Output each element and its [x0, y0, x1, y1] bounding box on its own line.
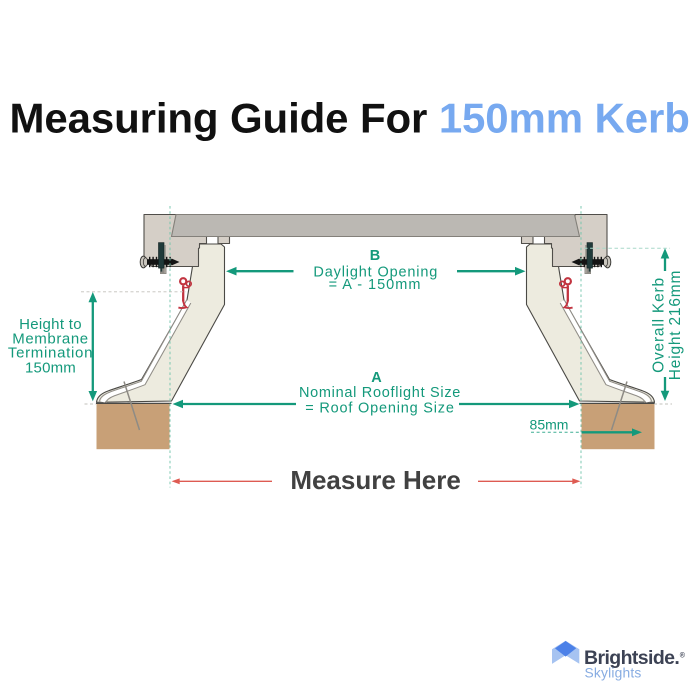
svg-text:= A - 150mm: = A - 150mm: [329, 277, 422, 293]
svg-text:Measure Here: Measure Here: [290, 465, 461, 495]
svg-text:Height 216mm: Height 216mm: [667, 270, 684, 380]
svg-text:85mm: 85mm: [530, 416, 569, 432]
svg-text:A: A: [371, 370, 382, 386]
svg-text:Measuring Guide For 150mm Kerb: Measuring Guide For 150mm Kerb: [10, 95, 690, 142]
svg-text:150mm: 150mm: [25, 359, 76, 376]
svg-text:B: B: [370, 248, 380, 264]
svg-text:Nominal Rooflight Size: Nominal Rooflight Size: [299, 385, 461, 401]
svg-text:= Roof Opening Size: = Roof Opening Size: [305, 401, 454, 417]
svg-text:Skylights: Skylights: [585, 665, 642, 680]
svg-text:Overall Kerb: Overall Kerb: [650, 277, 667, 373]
